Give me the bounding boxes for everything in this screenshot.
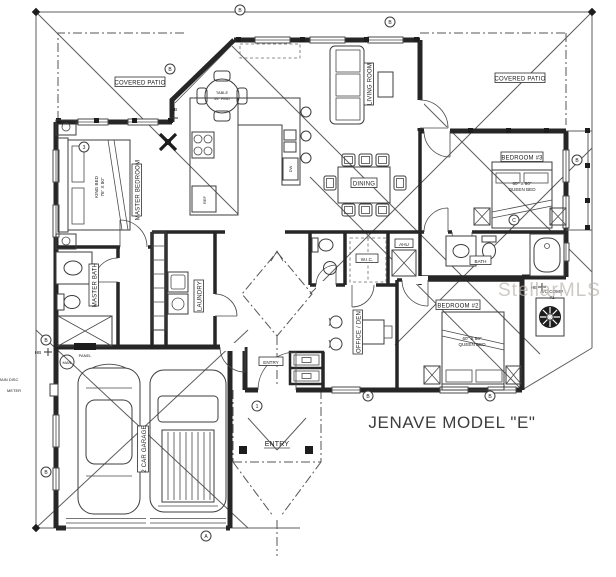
- chair: [330, 338, 342, 350]
- toilet-tank: [312, 238, 318, 252]
- pantry-laundry: [152, 232, 188, 330]
- label-entry-hall: ENTRY: [263, 360, 279, 365]
- chair: [330, 316, 342, 328]
- sink: [284, 130, 296, 140]
- tv-console: [378, 72, 393, 97]
- sink: [284, 142, 296, 152]
- porch-post: [239, 446, 247, 454]
- kitchen: REF DW: [160, 44, 311, 215]
- watermark: StellarMLS: [498, 280, 601, 301]
- label-covered-patio-right: COVERED PATIO: [494, 77, 545, 83]
- master-bedroom: [56, 120, 130, 249]
- floor-plan-sheet: REF DW TABLE 54" RND: [0, 0, 616, 577]
- meter-box: [50, 384, 58, 396]
- bedroom2: [424, 312, 521, 390]
- label-hb-left: HB: [35, 350, 41, 355]
- ref-label: REF: [202, 195, 207, 204]
- car-truck: [150, 370, 226, 512]
- table-label-1: TABLE: [216, 90, 229, 95]
- label-covered-patio-left: COVERED PATIO: [114, 81, 165, 87]
- upper-cabinets: [240, 44, 300, 58]
- desk: [360, 320, 384, 344]
- label-bath: BATH: [475, 259, 487, 264]
- dryer: [168, 294, 188, 314]
- label-bedroom3: BEDROOM #3: [501, 156, 543, 162]
- electrical-panel: [74, 343, 96, 350]
- breakfast-nook: TABLE 54" RND: [197, 71, 247, 121]
- pantry-shelves: [152, 232, 166, 330]
- label-hb-top: HB: [171, 107, 177, 112]
- label-queen3-2: QUEEN BED: [508, 187, 536, 192]
- tub: [530, 234, 564, 276]
- label-king-bed-1: KING BED: [94, 175, 99, 198]
- master-bath: [56, 252, 112, 346]
- label-master-bath: MASTER BATH: [93, 263, 99, 307]
- vanity: [56, 252, 92, 284]
- stool: [301, 107, 311, 117]
- ac-condenser: [536, 298, 564, 336]
- label-laundry: LAUNDRY: [198, 281, 204, 311]
- toilet: [319, 239, 333, 251]
- stool: [301, 131, 311, 141]
- truck-bed: [162, 430, 214, 502]
- stool: [301, 153, 311, 163]
- dw-label: DW: [288, 165, 293, 172]
- toilet: [64, 296, 80, 309]
- car-cabin: [86, 400, 132, 464]
- label-queen2-1: 60" X 80": [462, 336, 481, 341]
- floor-plan-drawing: REF DW TABLE 54" RND: [0, 0, 616, 577]
- man-label: MAN: [63, 360, 72, 365]
- headboard: [492, 162, 552, 170]
- label-garage: 2 CAR GARAGE: [142, 425, 148, 472]
- label-main-disc: MAIN DISC: [0, 377, 18, 382]
- bedroom3: [446, 162, 566, 276]
- label-bedroom2: BEDROOM #2: [437, 304, 479, 310]
- fan-glyph: [160, 134, 176, 150]
- porch-post: [305, 446, 313, 454]
- label-entry-porch: ENTRY: [265, 441, 290, 448]
- garage-door: [66, 519, 226, 524]
- label-master-bedroom: MASTER BEDROOM: [136, 160, 142, 220]
- toilet-tank: [482, 236, 496, 242]
- sofa: [330, 46, 364, 124]
- label-panel: PANEL: [79, 353, 93, 358]
- marker-c: C: [512, 218, 516, 224]
- label-queen2-2: QUEEN BED: [458, 342, 486, 347]
- toilet-tank: [57, 294, 64, 310]
- table-label-2: 54" RND: [214, 96, 230, 101]
- label-queen3-1: 60" X 80": [512, 181, 531, 186]
- marker-1: 1: [256, 404, 259, 410]
- label-office-den: OFFICE / DEN: [357, 311, 363, 353]
- label-meter: METER: [7, 388, 21, 393]
- label-dining: DINING: [353, 182, 375, 188]
- marker-3: 3: [83, 145, 86, 151]
- label-king-bed-2: 76" X 80": [100, 177, 105, 196]
- queen-bed: [492, 170, 552, 228]
- label-living-room: LIVING ROOM: [368, 63, 374, 105]
- car-sedan: [78, 368, 140, 514]
- overhang-lines: [58, 33, 566, 556]
- living-room: [330, 46, 393, 124]
- label-wic: W.I.C.: [361, 257, 374, 262]
- plan-title: JENAVE MODEL "E": [368, 413, 535, 432]
- label-ahu: AHU: [399, 242, 409, 247]
